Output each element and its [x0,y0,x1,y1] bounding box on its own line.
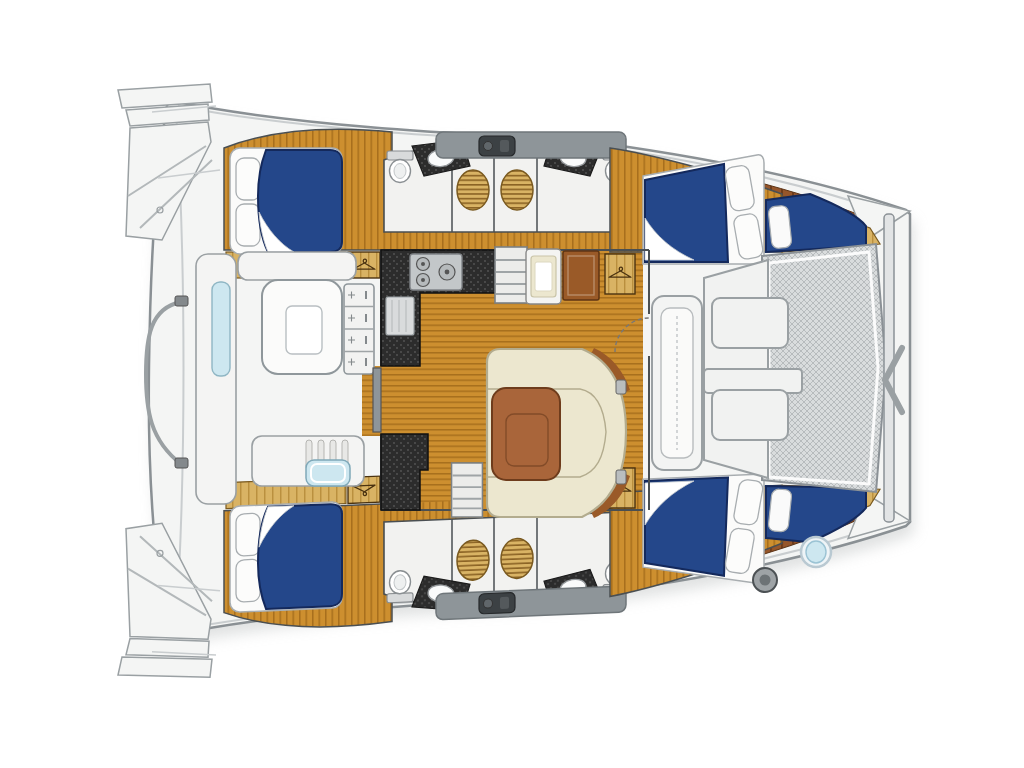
sliding-door [373,368,381,432]
pillow [236,158,260,200]
pillow [768,205,792,249]
cockpit-drawer-unit [344,284,374,374]
forward-wardrobe-port [605,254,635,294]
pillow [236,204,260,246]
double-berth [230,148,342,254]
windlass [753,568,777,592]
cockpit-table [262,280,342,374]
catamaran-floorplan [0,0,1024,768]
cockpit-bench-forward [252,436,364,486]
toilet-icon [387,151,413,183]
companionway-steps-port [495,247,527,303]
companionway-steps-starboard [452,463,483,517]
forward-seat-cushion [712,390,788,440]
stove [410,254,462,290]
sidedeck-band [436,132,626,158]
cockpit-seat-aft [238,252,356,280]
cockpit-side-bench [196,254,236,504]
crew-washbasin [801,537,831,567]
forward-seat-cushion [712,298,788,348]
fridge-top [526,249,561,304]
floorplan-page [0,0,1024,768]
forward-bench [652,296,702,470]
bench-cushion [212,282,230,376]
salon-settee [487,348,630,518]
galley-sink-drainer [386,297,414,335]
shower-grate [501,170,533,210]
shower-grate [457,170,489,210]
